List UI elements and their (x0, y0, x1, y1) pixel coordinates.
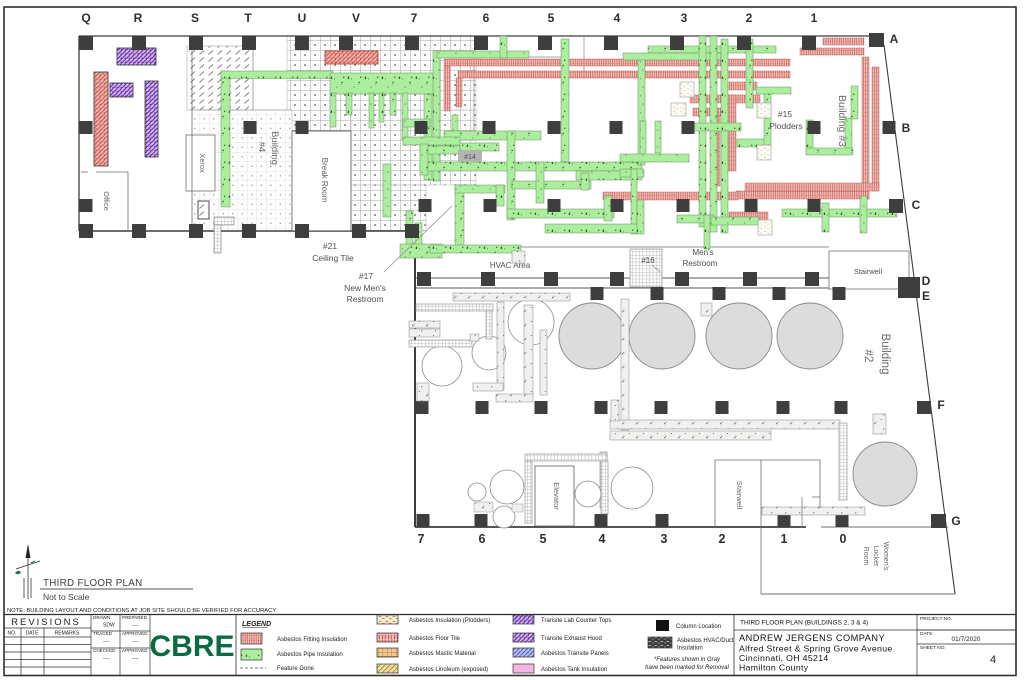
svg-text:CHECKED: CHECKED (93, 648, 116, 653)
svg-text:#2: #2 (862, 350, 874, 363)
svg-text:----: ---- (132, 656, 139, 662)
svg-text:7: 7 (411, 11, 418, 25)
svg-text:NO.: NO. (8, 631, 17, 637)
svg-text:Plodders: Plodders (769, 121, 803, 131)
svg-text:----: ---- (132, 623, 139, 629)
svg-text:2: 2 (719, 532, 726, 546)
svg-text:#15: #15 (778, 109, 792, 119)
svg-text:4: 4 (614, 11, 621, 25)
svg-text:----: ---- (103, 656, 110, 662)
svg-text:0: 0 (840, 532, 847, 546)
svg-text:THIRD FLOOR PLAN (BUILDINGS 2,: THIRD FLOOR PLAN (BUILDINGS 2, 3 & 4) (740, 620, 868, 627)
svg-text:New Men's: New Men's (344, 283, 386, 293)
svg-text:Hamilton County: Hamilton County (739, 663, 809, 673)
svg-text:APPROVED: APPROVED (122, 631, 148, 636)
svg-text:SDW: SDW (103, 623, 115, 629)
svg-text:R: R (134, 11, 143, 25)
svg-text:Transite Exhaust Hood: Transite Exhaust Hood (541, 636, 602, 642)
svg-text:----: ---- (103, 639, 110, 645)
svg-text:T: T (244, 11, 252, 25)
svg-text:----: ---- (132, 639, 139, 645)
svg-text:Women's: Women's (882, 542, 889, 571)
svg-text:7: 7 (418, 532, 425, 546)
svg-text:CBRE: CBRE (149, 630, 234, 663)
svg-text:Asbestos Tank Insulation: Asbestos Tank Insulation (541, 667, 607, 673)
svg-text:5: 5 (540, 532, 547, 546)
svg-text:#4: #4 (256, 142, 267, 153)
svg-text:DRAWN: DRAWN (93, 615, 110, 620)
svg-text:4: 4 (599, 532, 606, 546)
svg-text:Stairwell: Stairwell (735, 481, 744, 510)
svg-text:V: V (352, 11, 360, 25)
svg-text:Elevator: Elevator (552, 482, 561, 510)
svg-text:Transite Lab Counter Tops: Transite Lab Counter Tops (541, 618, 611, 624)
svg-text:Asbestos Transite Panels: Asbestos Transite Panels (541, 651, 609, 657)
svg-text:REVISIONS: REVISIONS (11, 617, 81, 628)
svg-text:Cincinnati, OH 45214: Cincinnati, OH 45214 (739, 653, 829, 663)
svg-text:S: S (191, 11, 199, 25)
svg-text:Building: Building (269, 131, 280, 165)
svg-text:Men's: Men's (692, 248, 713, 257)
svg-text:Building: Building (879, 334, 891, 375)
svg-text:APPROVED: APPROVED (122, 648, 148, 653)
svg-text:A: A (890, 32, 899, 46)
svg-text:Asbestos Pipe Insulation: Asbestos Pipe Insulation (277, 652, 343, 658)
svg-text:Feature Gone: Feature Gone (277, 666, 315, 672)
svg-text:Room: Room (862, 547, 869, 566)
svg-text:have been marked for Removal: have been marked for Removal (645, 665, 729, 671)
svg-text:#16: #16 (641, 256, 655, 265)
svg-text:DATE: DATE (920, 631, 932, 637)
svg-text:DATE: DATE (26, 631, 40, 637)
svg-text:U: U (298, 11, 307, 25)
svg-text:Asbestos Insulation (Plodders): Asbestos Insulation (Plodders) (409, 618, 490, 624)
svg-text:Ceiling Tile: Ceiling Tile (312, 253, 354, 263)
svg-text:1: 1 (811, 11, 818, 25)
svg-text:Xerox: Xerox (198, 153, 207, 173)
svg-text:#17: #17 (359, 271, 373, 281)
svg-text:TRACED: TRACED (93, 631, 113, 636)
svg-text:C: C (912, 198, 921, 212)
svg-text:3: 3 (661, 532, 668, 546)
svg-text:F: F (937, 398, 944, 412)
svg-text:D: D (922, 274, 931, 288)
svg-text:1: 1 (781, 532, 788, 546)
svg-text:Not to Scale: Not to Scale (43, 592, 90, 602)
svg-text:Office: Office (102, 191, 111, 210)
svg-text:Q: Q (81, 11, 90, 25)
svg-text:PROJECT NO.: PROJECT NO. (920, 616, 952, 622)
svg-text:THIRD FLOOR PLAN: THIRD FLOOR PLAN (43, 578, 143, 589)
svg-text:PREPARED: PREPARED (122, 615, 148, 620)
svg-text:Stairwell: Stairwell (854, 267, 883, 276)
svg-text:Break Room: Break Room (320, 158, 329, 203)
svg-text:3: 3 (681, 11, 688, 25)
svg-text:Asbestos HVAC/Duct: Asbestos HVAC/Duct (677, 638, 734, 644)
svg-text:Building #3: Building #3 (836, 95, 848, 147)
svg-text:#14: #14 (464, 154, 476, 161)
svg-text:B: B (902, 121, 911, 135)
svg-text:Asbestos Fitting Insulation: Asbestos Fitting Insulation (277, 637, 347, 643)
svg-text:SHEET NO.: SHEET NO. (920, 645, 946, 651)
svg-text:6: 6 (483, 11, 490, 25)
svg-text:ANDREW JERGENS COMPANY: ANDREW JERGENS COMPANY (739, 633, 885, 643)
svg-text:6: 6 (479, 532, 486, 546)
svg-text:LEGEND: LEGEND (242, 621, 271, 628)
svg-text:Asbestos Floor Tile: Asbestos Floor Tile (409, 636, 461, 642)
svg-text:REMARKS: REMARKS (55, 631, 80, 637)
svg-text:5: 5 (548, 11, 555, 25)
svg-text:01/7/2020: 01/7/2020 (952, 636, 981, 643)
svg-text:Asbestos Linoleum (exposed): Asbestos Linoleum (exposed) (409, 667, 488, 673)
svg-text:Restroom: Restroom (347, 294, 384, 304)
svg-text:4: 4 (990, 654, 996, 666)
svg-text:2: 2 (746, 11, 753, 25)
svg-text:*Features shown in Gray: *Features shown in Gray (654, 657, 721, 663)
svg-text:Restroom: Restroom (683, 259, 718, 268)
svg-text:Column Location: Column Location (676, 624, 721, 630)
svg-text:NOTE: BUILDING LAYOUT AND CON: NOTE: BUILDING LAYOUT AND CONDITIONS AT … (7, 608, 277, 614)
svg-text:Locker: Locker (872, 545, 879, 567)
svg-text:Alfred Street & Spring Grove A: Alfred Street & Spring Grove Avenue (739, 644, 893, 654)
svg-text:#21: #21 (323, 241, 337, 251)
svg-text:Insulation: Insulation (677, 646, 703, 652)
svg-text:Asbestos Mastic Material: Asbestos Mastic Material (409, 651, 476, 657)
svg-text:G: G (951, 514, 960, 528)
svg-text:E: E (922, 289, 930, 303)
